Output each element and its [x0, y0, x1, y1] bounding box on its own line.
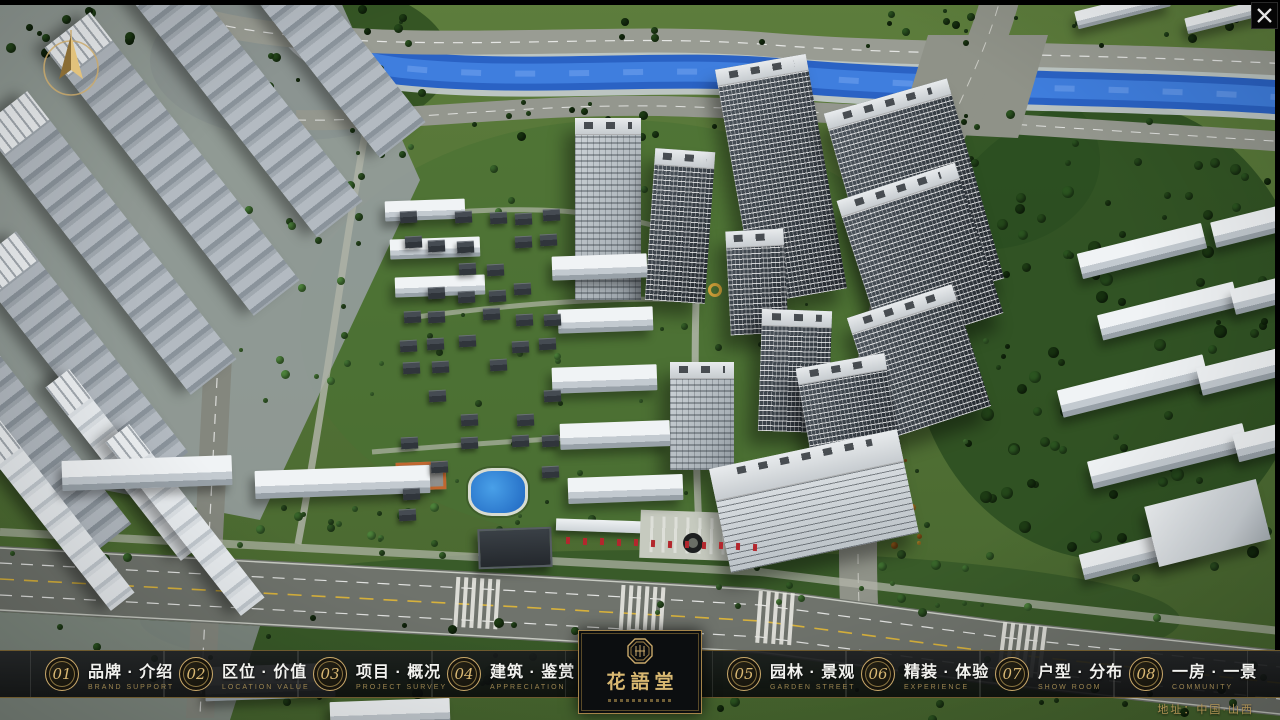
landscape-feature — [708, 283, 722, 297]
nav-label-zh: 品牌 · 介绍 — [88, 658, 174, 682]
building — [1087, 423, 1249, 489]
building-layer — [0, 0, 1280, 720]
courtyard-house — [490, 212, 508, 225]
nav-item-garden[interactable]: 05 园林 · 景观 GARDEN STREET — [712, 651, 846, 697]
building — [1097, 281, 1239, 340]
building — [645, 148, 715, 304]
building — [1210, 202, 1280, 248]
courtyard-house — [539, 338, 557, 351]
courtyard-house — [512, 435, 530, 448]
courtyard-house — [405, 236, 423, 249]
nav-item-brand[interactable]: 01 品牌 · 介绍 BRAND SUPPORT — [30, 651, 164, 697]
presentation-window: 01 品牌 · 介绍 BRAND SUPPORT 02 区位 · 价值 LOCA… — [0, 0, 1280, 720]
entrance-flag — [685, 541, 689, 548]
nav-label-en: LOCATION VALUE — [222, 684, 310, 691]
courtyard-house — [483, 308, 501, 321]
courtyard-house — [542, 466, 560, 479]
courtyard-house — [459, 263, 477, 276]
entrance-flag — [583, 538, 587, 545]
nav-item-views[interactable]: 08 一房 · 一景 COMMUNITY — [1114, 651, 1248, 697]
entrance-flag — [600, 538, 604, 545]
nav-item-architecture[interactable]: 04 建筑 · 鉴赏 APPRECIATION — [432, 651, 566, 697]
nav-label-en: EXPERIENCE — [904, 684, 989, 691]
building — [1057, 354, 1209, 417]
entrance-flag — [634, 539, 638, 546]
courtyard-house — [514, 283, 532, 296]
top-letterbox-bar — [0, 0, 1280, 5]
entrance-flag — [753, 544, 757, 551]
courtyard-house — [458, 291, 476, 304]
nav-label-zh: 一房 · 一景 — [1172, 658, 1257, 682]
courtyard-house — [401, 437, 419, 450]
building — [670, 362, 734, 470]
entrance-flag — [651, 540, 655, 547]
courtyard-house — [404, 311, 422, 324]
courtyard-house — [432, 361, 450, 374]
building — [560, 420, 671, 450]
courtyard-house — [487, 264, 505, 277]
nav-number-badge: 04 — [447, 657, 481, 691]
courtyard-house — [427, 338, 445, 351]
courtyard-house — [403, 362, 421, 375]
building — [709, 429, 919, 573]
courtyard-house — [489, 290, 507, 303]
courtyard-house — [515, 236, 533, 249]
courtyard-house — [459, 335, 477, 348]
nav-item-interior[interactable]: 06 精装 · 体验 EXPERIENCE — [846, 651, 980, 697]
courtyard-house — [400, 211, 418, 224]
entrance-flag — [668, 541, 672, 548]
courtyard-house — [543, 209, 561, 222]
courtyard-house — [461, 437, 479, 450]
building — [552, 253, 648, 280]
nav-number-badge: 03 — [313, 657, 347, 691]
courtyard-house — [512, 341, 530, 354]
courtyard-house — [544, 390, 562, 403]
nav-number-badge: 05 — [727, 657, 761, 691]
courtyard-house — [428, 311, 446, 324]
logo-seal-icon — [627, 638, 653, 664]
courtyard-house — [428, 287, 446, 300]
nav-label-zh: 户型 · 分布 — [1038, 658, 1123, 682]
building — [385, 199, 466, 222]
nav-label-en: COMMUNITY — [1172, 684, 1257, 691]
courtyard-house — [429, 390, 447, 403]
nav-label-zh: 园林 · 景观 — [770, 658, 856, 682]
building — [1230, 275, 1280, 315]
close-icon — [1252, 3, 1277, 28]
courtyard-house — [517, 414, 535, 427]
entrance-flag — [736, 543, 740, 550]
entrance-flag — [719, 542, 723, 549]
courtyard-house — [515, 213, 533, 226]
courtyard-house — [400, 340, 418, 353]
right-letterbox-bar — [1275, 0, 1280, 650]
entrance-flag — [617, 539, 621, 546]
swimming-pool — [468, 468, 528, 516]
courtyard-house — [516, 314, 534, 327]
nav-label-en: SHOW ROOM — [1038, 684, 1123, 691]
nav-label-en: BRAND SUPPORT — [88, 684, 174, 691]
building — [330, 698, 451, 720]
entrance-flag — [566, 537, 570, 544]
nav-label-zh: 精装 · 体验 — [904, 658, 989, 682]
entrance-flag — [702, 542, 706, 549]
courtyard-house — [431, 461, 449, 474]
building — [62, 455, 233, 491]
compass-north-icon — [36, 24, 106, 113]
courtyard-house — [403, 488, 421, 501]
nav-number-badge: 08 — [1129, 657, 1163, 691]
close-button[interactable] — [1251, 2, 1278, 29]
nav-number-badge: 01 — [45, 657, 79, 691]
building — [1196, 344, 1280, 395]
brand-logo-title: 花語堂 — [601, 667, 678, 694]
courtyard-house — [542, 435, 560, 448]
courtyard-house — [399, 509, 417, 522]
nav-item-project[interactable]: 03 项目 · 概况 PROJECT SURVEY — [298, 651, 432, 697]
courtyard-house — [455, 211, 473, 224]
masterplan-render[interactable] — [0, 0, 1280, 720]
courtyard-house — [540, 234, 558, 247]
building — [552, 364, 658, 394]
project-address: 地址：中国·山西 — [1157, 701, 1254, 717]
nav-item-location[interactable]: 02 区位 · 价值 LOCATION VALUE — [164, 651, 298, 697]
brand-logo-panel: 花語堂 — [578, 630, 702, 714]
nav-label-en: GARDEN STREET — [770, 684, 856, 691]
building — [568, 474, 684, 504]
courtyard-house — [461, 414, 479, 427]
courtyard-house — [457, 241, 475, 254]
building — [1144, 479, 1271, 567]
nav-label-en: APPRECIATION — [490, 684, 575, 691]
courtyard-house — [544, 314, 562, 327]
courtyard-house — [490, 359, 508, 372]
nav-number-badge: 06 — [861, 657, 895, 691]
courtyard-house — [428, 240, 446, 253]
building — [1077, 223, 1207, 279]
nav-number-badge: 07 — [995, 657, 1029, 691]
gatehouse-building — [477, 527, 552, 570]
nav-label-zh: 区位 · 价值 — [222, 658, 310, 682]
brand-logo-subtitle — [608, 699, 672, 702]
nav-label-zh: 建筑 · 鉴赏 — [490, 658, 575, 682]
nav-item-floorplans[interactable]: 07 户型 · 分布 SHOW ROOM — [980, 651, 1114, 697]
nav-number-badge: 02 — [179, 657, 213, 691]
building — [558, 306, 654, 333]
